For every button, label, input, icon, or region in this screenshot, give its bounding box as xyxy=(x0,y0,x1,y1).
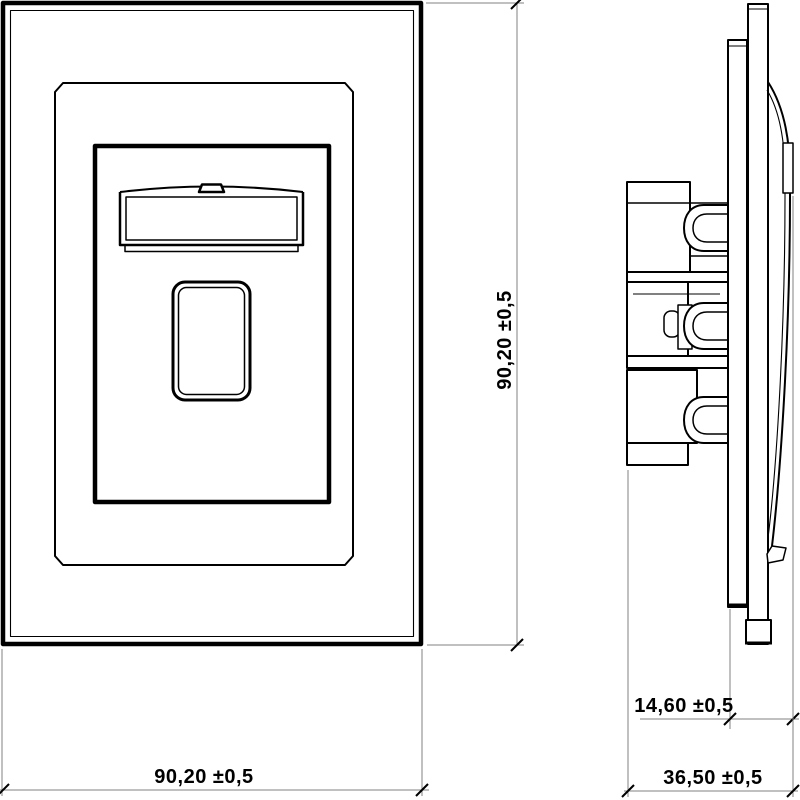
side-back-plate xyxy=(728,40,747,607)
side-body-top-flange xyxy=(627,272,728,282)
claw-inner xyxy=(693,214,727,242)
side-body-upper xyxy=(627,182,690,273)
side-front-plate xyxy=(748,4,768,644)
side-claw-middle xyxy=(684,303,727,349)
label-window-tab xyxy=(199,185,224,193)
claw-inner xyxy=(693,406,727,434)
side-cover-foot xyxy=(767,546,786,563)
dim-label-front-height: 90,20 ±0,5 xyxy=(494,290,516,389)
side-claw-bottom xyxy=(684,397,727,443)
dim-label-side-depth: 36,50 ±0,5 xyxy=(663,767,762,789)
dim-label-side-protrusion: 14,60 ±0,5 xyxy=(634,695,733,717)
side-claw-top xyxy=(684,205,727,251)
technical-drawing: 90,20 ±0,5 90,20 ±0,5 14,60 ±0,5 36, xyxy=(0,0,800,800)
front-keystone-opening xyxy=(173,282,250,400)
side-cover-clip xyxy=(783,143,793,193)
front-view xyxy=(3,3,421,644)
keystone-opening-outer xyxy=(173,282,250,400)
side-body-ledge xyxy=(627,356,728,368)
side-body-bottom xyxy=(627,443,688,465)
side-front-plate-foot xyxy=(746,620,771,643)
dim-label-front-width: 90,20 ±0,5 xyxy=(154,766,253,788)
claw-inner xyxy=(693,312,727,340)
